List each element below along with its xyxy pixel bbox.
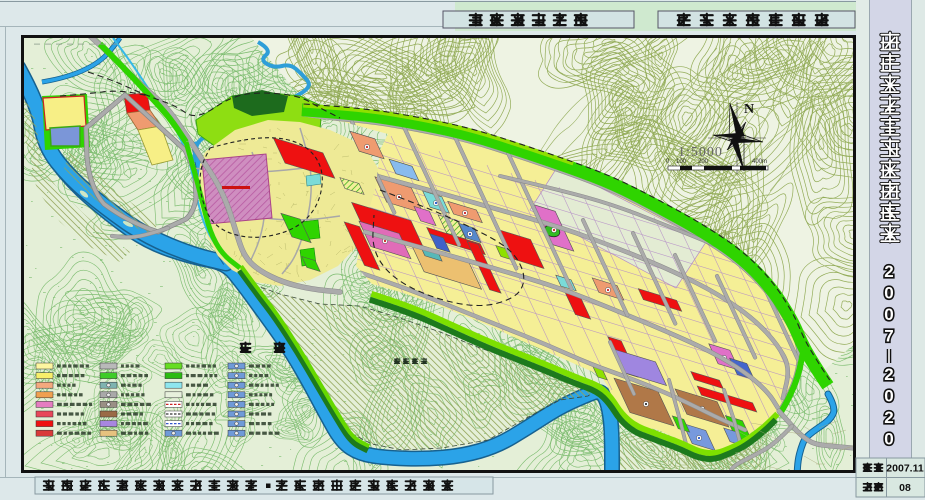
svg-text:200: 200 — [698, 159, 709, 165]
svg-text:0: 0 — [884, 284, 893, 303]
svg-text:400m: 400m — [752, 159, 767, 165]
svg-text:0: 0 — [884, 387, 893, 406]
svg-text:2: 2 — [884, 408, 893, 427]
svg-text:2007.11: 2007.11 — [886, 463, 924, 475]
svg-text:0: 0 — [884, 430, 893, 449]
svg-text:08: 08 — [899, 482, 911, 494]
svg-text:2: 2 — [884, 365, 893, 384]
svg-text:0: 0 — [884, 305, 893, 324]
svg-text:100: 100 — [676, 159, 687, 165]
svg-text:2: 2 — [884, 262, 893, 281]
svg-text:N: N — [744, 102, 754, 117]
svg-text:7: 7 — [884, 327, 893, 346]
svg-text:1:5000: 1:5000 — [678, 145, 723, 160]
